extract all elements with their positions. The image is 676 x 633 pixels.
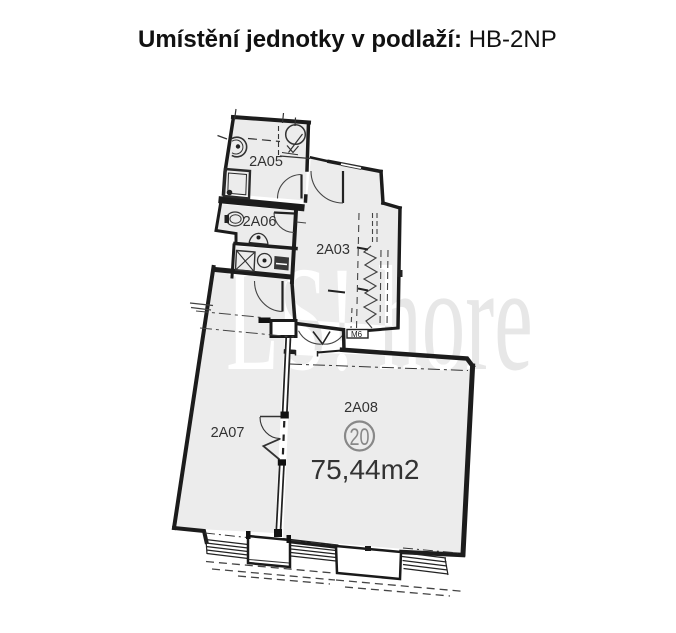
svg-text:20: 20 xyxy=(350,424,370,451)
svg-text:2A06: 2A06 xyxy=(243,214,277,230)
svg-text:2A05: 2A05 xyxy=(249,154,283,170)
svg-text:2A08: 2A08 xyxy=(344,400,378,416)
svg-text:M6: M6 xyxy=(351,330,363,339)
svg-text:2A07: 2A07 xyxy=(211,425,245,441)
svg-text:75,44m2: 75,44m2 xyxy=(311,454,420,485)
svg-text:2A03: 2A03 xyxy=(316,242,350,258)
